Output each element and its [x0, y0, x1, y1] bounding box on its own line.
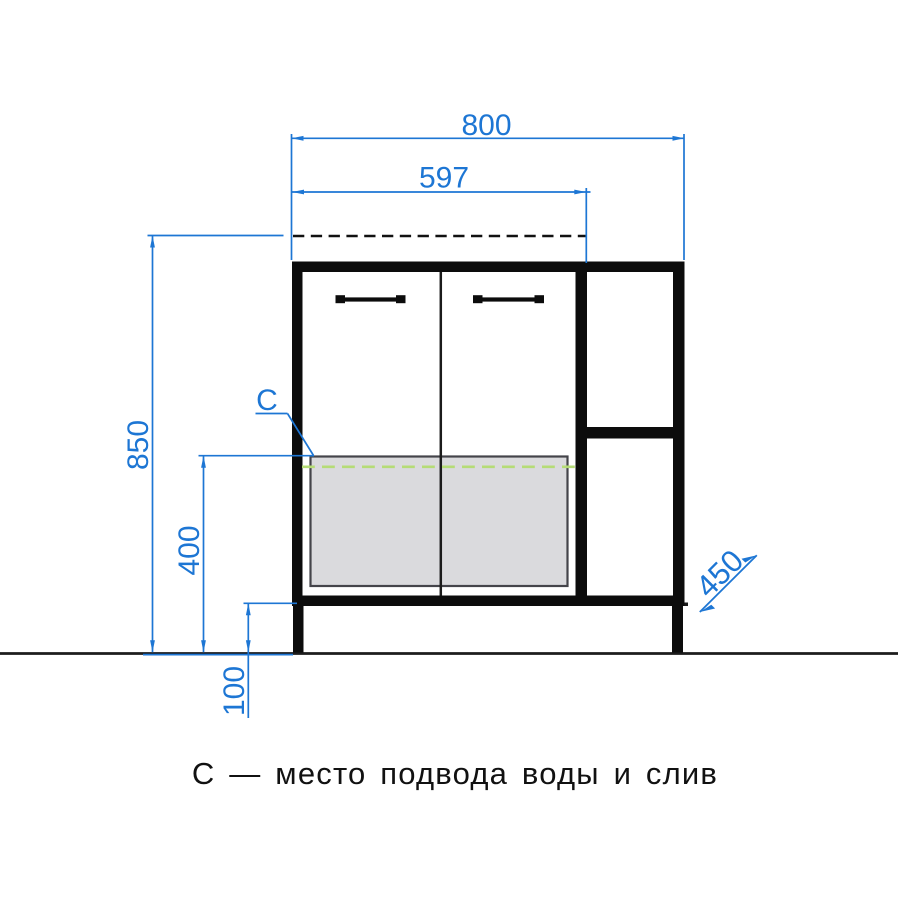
svg-text:100: 100	[218, 666, 251, 716]
svg-text:850: 850	[122, 420, 155, 470]
svg-text:450: 450	[689, 543, 750, 604]
svg-text:С — место подвода воды и слив: С — место подвода воды и слив	[192, 756, 718, 791]
svg-text:С: С	[256, 384, 278, 417]
svg-text:800: 800	[461, 109, 511, 142]
svg-text:400: 400	[173, 525, 206, 575]
svg-text:597: 597	[419, 162, 469, 195]
